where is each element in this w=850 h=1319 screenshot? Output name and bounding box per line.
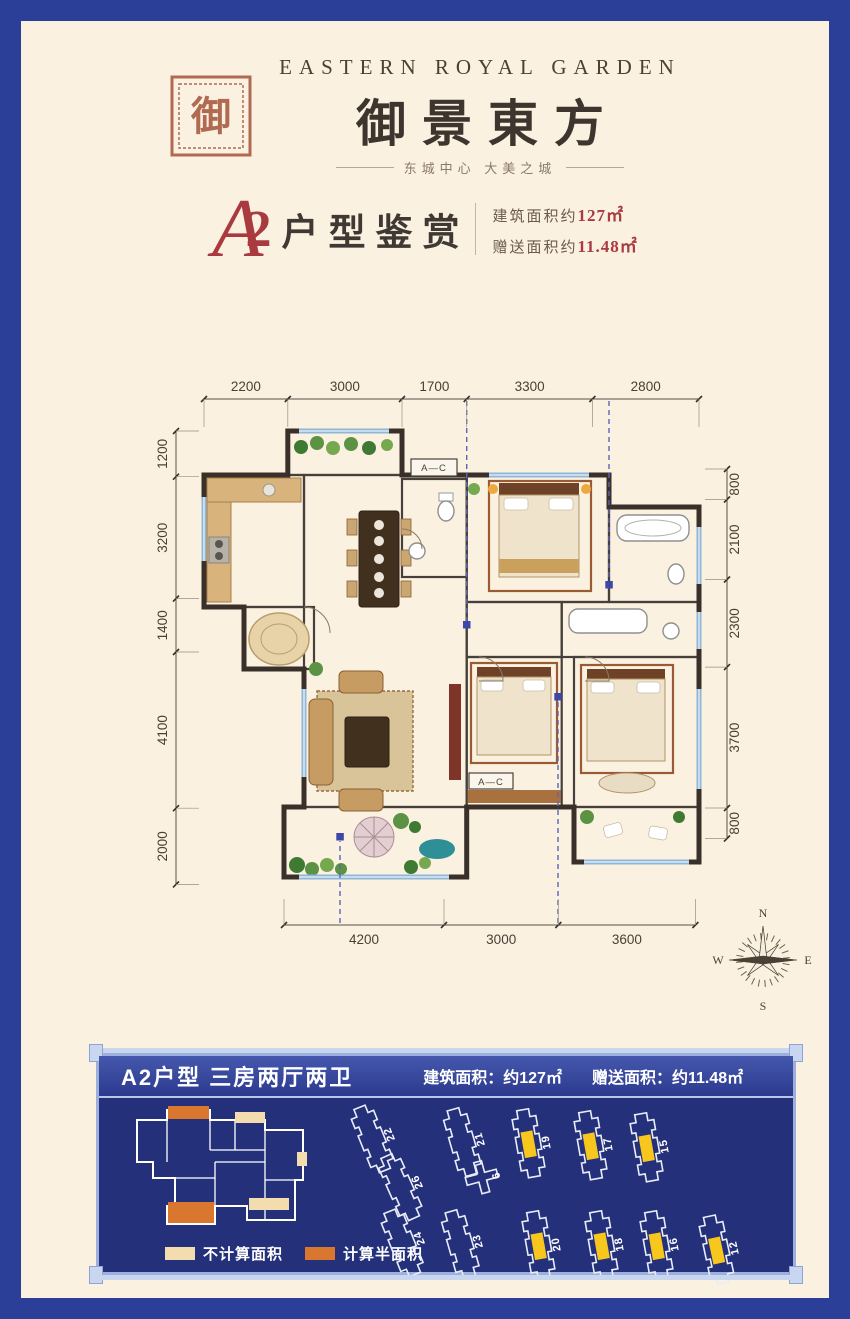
panel-body: 不计算面积 计算半面积 22 21 19	[99, 1098, 793, 1270]
svg-text:2300: 2300	[727, 608, 742, 638]
site-building-highlighted: 16	[634, 1203, 694, 1293]
svg-text:1200: 1200	[155, 439, 170, 469]
panel-area-text: 建筑面积：约127㎡	[423, 1064, 562, 1088]
svg-text:2100: 2100	[727, 524, 742, 554]
svg-text:3000: 3000	[486, 932, 516, 947]
site-building-highlighted: 20	[516, 1203, 576, 1293]
schematic-no-area-right	[297, 1152, 307, 1166]
svg-text:26: 26	[409, 1173, 426, 1191]
unit-number: 2	[245, 200, 271, 259]
gift-label: 赠送面积约	[492, 239, 577, 256]
svg-text:6: 6	[490, 1170, 503, 1180]
svg-text:20: 20	[549, 1236, 563, 1252]
svg-text:800: 800	[727, 473, 742, 496]
svg-text:3700: 3700	[727, 723, 742, 753]
unit-title-row: A 2 户型鉴赏 建筑面积约127㎡ 赠送面积约11.48㎡	[21, 199, 829, 259]
unit-summary-panel: A2户型 三房两厅两卫 建筑面积：约127㎡ 赠送面积：约11.48㎡	[96, 1053, 796, 1275]
dimensions-top: 2200 3000 1700 3300 2800	[201, 379, 702, 427]
brand-name-cn: 御景東方	[356, 84, 620, 156]
svg-text:1700: 1700	[419, 379, 449, 394]
unit-schematic	[115, 1102, 345, 1234]
svg-text:19: 19	[539, 1134, 553, 1150]
dimensions-left: 1200 3200 1400 4100 2000	[155, 428, 199, 887]
svg-text:1400: 1400	[155, 610, 170, 640]
schematic-no-area-top	[235, 1112, 265, 1123]
svg-text:3300: 3300	[515, 379, 545, 394]
svg-text:16: 16	[667, 1236, 681, 1252]
poster-canvas: 御 EASTERN ROYAL GARDEN 御景東方 东城中心 大美之城 A …	[0, 0, 850, 1319]
site-legend: 不计算面积 计算半面积	[165, 1243, 423, 1264]
bathroom-1	[402, 479, 467, 577]
ac-label-bottom: A—C	[478, 777, 504, 788]
brand-tagline: 东城中心 大美之城	[336, 158, 625, 177]
panel-title: A2户型 三房两厅两卫	[121, 1060, 353, 1092]
dimensions-bottom: 4200 3000 3600	[281, 899, 698, 947]
svg-text:2800: 2800	[631, 379, 661, 394]
brand-name-en: EASTERN ROYAL GARDEN	[279, 55, 681, 80]
unit-areas: 建筑面积约127㎡ 赠送面积约11.48㎡	[492, 201, 637, 257]
ac-platform-top: A—C	[411, 459, 457, 476]
site-building: 23	[434, 1199, 501, 1291]
svg-text:2000: 2000	[155, 831, 170, 861]
schematic-half-area-bottom	[168, 1202, 214, 1223]
legend-no-area-label: 不计算面积	[203, 1243, 283, 1264]
poster-paper: 御 EASTERN ROYAL GARDEN 御景東方 东城中心 大美之城 A …	[21, 21, 829, 1298]
site-building-highlighted: 15	[624, 1105, 684, 1195]
area-label: 建筑面积约	[492, 208, 577, 225]
svg-text:3000: 3000	[330, 379, 360, 394]
seal-character: 御	[190, 95, 231, 139]
svg-text:17: 17	[601, 1136, 615, 1152]
brand-seal-icon: 御	[169, 74, 253, 158]
title-divider	[475, 203, 476, 255]
panel-areas: 建筑面积：约127㎡ 赠送面积：约11.48㎡	[423, 1064, 743, 1088]
compass-rose-icon: N S W E	[711, 905, 815, 1013]
floorplan: A—C A—C 2200 3000 1700 3300	[149, 369, 819, 969]
compass-e: E	[804, 953, 811, 967]
ac-label-top: A—C	[421, 463, 447, 474]
schematic-no-area-bottom	[249, 1198, 289, 1210]
unit-title-text: 户型鉴赏	[281, 202, 469, 256]
site-building-highlighted: 17	[568, 1103, 628, 1193]
legend-no-area: 不计算面积	[165, 1243, 283, 1264]
compass-w: W	[712, 953, 724, 967]
panel-gift-text: 赠送面积：约11.48㎡	[592, 1064, 743, 1088]
svg-text:22: 22	[381, 1125, 397, 1143]
gift-value: 11.48㎡	[578, 237, 638, 256]
svg-text:2200: 2200	[231, 379, 261, 394]
site-building-highlighted: 12	[693, 1206, 755, 1297]
dimensions-right: 800 2100 2300 3700 800	[705, 466, 742, 842]
header: 御 EASTERN ROYAL GARDEN 御景東方 东城中心 大美之城	[21, 55, 829, 177]
ac-platform-bottom: A—C	[469, 773, 513, 789]
legend-no-area-swatch	[165, 1247, 195, 1260]
svg-text:15: 15	[657, 1138, 671, 1154]
schematic-half-area-top	[168, 1106, 209, 1119]
svg-text:21: 21	[472, 1131, 487, 1148]
svg-text:3600: 3600	[612, 932, 642, 947]
svg-text:3200: 3200	[155, 523, 170, 553]
hallway	[467, 602, 562, 657]
site-building-highlighted: 18	[579, 1203, 639, 1293]
svg-text:23: 23	[470, 1233, 485, 1250]
svg-text:12: 12	[727, 1240, 742, 1256]
svg-text:4100: 4100	[155, 715, 170, 745]
area-value: 127㎡	[578, 206, 625, 225]
site-building-highlighted: 19	[506, 1101, 566, 1191]
balcony-top	[288, 431, 402, 475]
svg-text:800: 800	[727, 812, 742, 835]
svg-text:18: 18	[612, 1236, 626, 1252]
compass-n: N	[759, 906, 768, 920]
compass-s: S	[760, 999, 767, 1013]
brand-block: EASTERN ROYAL GARDEN 御景東方 东城中心 大美之城	[279, 55, 681, 177]
panel-header: A2户型 三房两厅两卫 建筑面积：约127㎡ 赠送面积：约11.48㎡	[99, 1056, 793, 1098]
svg-text:24: 24	[411, 1229, 427, 1247]
svg-text:4200: 4200	[349, 932, 379, 947]
legend-half-area-swatch	[305, 1247, 335, 1260]
